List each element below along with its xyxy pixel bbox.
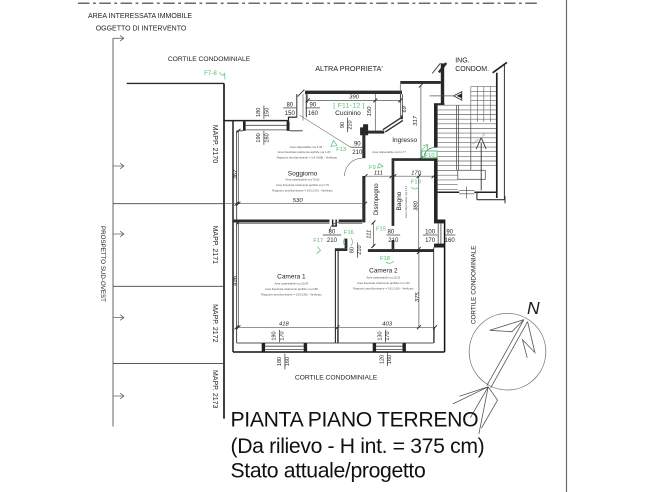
- svg-text:PIANTA PIANO TERRENO: PIANTA PIANO TERRENO: [231, 409, 479, 432]
- svg-text:Rapporto aeroilluminante = 1/8: Rapporto aeroilluminante = 1/8 (2,42) - …: [272, 188, 333, 192]
- svg-text:160: 160: [387, 355, 393, 364]
- svg-text:(Da rilievo - H int. = 375 cm): (Da rilievo - H int. = 375 cm): [231, 435, 485, 458]
- svg-text:Rapporto aeroilluminante = 1/4: Rapporto aeroilluminante = 1/4 (0,88) - …: [277, 155, 338, 159]
- svg-text:CORTILE CONDOMINIALE: CORTILE CONDOMINIALE: [470, 245, 477, 324]
- svg-text:F16: F16: [344, 230, 354, 236]
- svg-text:496: 496: [232, 275, 238, 286]
- svg-text:Rapporto aeroilluminante = 1/8: Rapporto aeroilluminante = 1/8 (2,58) - …: [261, 292, 322, 296]
- svg-text:210: 210: [347, 120, 353, 129]
- svg-text:160: 160: [445, 238, 456, 244]
- svg-text:Area calpestabile mq 11,77: Area calpestabile mq 11,77: [372, 150, 406, 154]
- svg-text:CORTILE CONDOMINIALE: CORTILE CONDOMINIALE: [295, 375, 378, 382]
- svg-text:180: 180: [277, 357, 283, 366]
- svg-text:375: 375: [415, 292, 421, 303]
- svg-text:Area calpestabile mq 15,01: Area calpestabile mq 15,01: [366, 276, 400, 280]
- svg-text:111: 111: [374, 170, 383, 176]
- svg-text:MAPP. 2172: MAPP. 2172: [211, 304, 218, 343]
- svg-text:160: 160: [264, 133, 270, 142]
- svg-text:[ F11-12 ]: [ F11-12 ]: [333, 103, 365, 110]
- svg-text:80: 80: [350, 247, 356, 253]
- svg-text:Area calpestabile mq 70,62: Area calpestabile mq 70,62: [286, 178, 320, 182]
- svg-text:210: 210: [388, 238, 399, 244]
- svg-text:F17: F17: [313, 238, 323, 244]
- svg-text:ING.: ING.: [455, 58, 469, 65]
- svg-text:130: 130: [378, 331, 384, 340]
- svg-text:190: 190: [256, 133, 262, 142]
- svg-text:90: 90: [340, 122, 346, 128]
- svg-text:317: 317: [413, 115, 419, 126]
- svg-text:160: 160: [308, 111, 319, 117]
- svg-text:170: 170: [425, 238, 436, 244]
- svg-text:MAPP. 2170: MAPP. 2170: [211, 125, 218, 164]
- svg-text:Cucinino: Cucinino: [335, 110, 361, 117]
- svg-text:180: 180: [256, 108, 262, 117]
- svg-text:CORTILE CONDOMINIALE: CORTILE CONDOMINIALE: [168, 56, 251, 63]
- svg-text:367: 367: [233, 169, 239, 180]
- svg-text:80: 80: [329, 230, 336, 236]
- svg-text:F13: F13: [336, 147, 346, 153]
- svg-text:ALTRA PROPRIETA': ALTRA PROPRIETA': [315, 64, 383, 73]
- svg-text:PROSPETTO SUD-OVEST: PROSPETTO SUD-OVEST: [99, 226, 106, 302]
- svg-text:403: 403: [382, 321, 393, 327]
- svg-text:380: 380: [414, 200, 420, 211]
- svg-text:90: 90: [446, 230, 453, 236]
- svg-text:170: 170: [385, 331, 391, 340]
- svg-text:160: 160: [285, 357, 291, 366]
- svg-text:MAPP. 2171: MAPP. 2171: [211, 226, 218, 265]
- svg-text:MAPP. 2173: MAPP. 2173: [211, 370, 218, 409]
- svg-text:F9: F9: [369, 165, 376, 171]
- svg-text:Area calpestabile mq 5,45: Area calpestabile mq 5,45: [290, 145, 323, 149]
- svg-text:AREA INTERESSATA IMMOBILE: AREA INTERESSATA IMMOBILE: [88, 13, 192, 20]
- svg-text:80: 80: [387, 230, 394, 236]
- svg-text:Bagno: Bagno: [396, 191, 403, 210]
- svg-text:210: 210: [352, 150, 363, 156]
- svg-text:Rapporto aeroilluminante = 1/8: Rapporto aeroilluminante = 1/8 (1,90) - …: [353, 286, 414, 290]
- svg-text:Camera 2: Camera 2: [369, 268, 398, 275]
- svg-text:390: 390: [349, 95, 360, 101]
- svg-text:F7-8: F7-8: [204, 70, 217, 77]
- svg-text:530: 530: [293, 198, 304, 204]
- svg-text:120: 120: [379, 355, 385, 364]
- svg-text:Area calpestabile mq 6,16: Area calpestabile mq 6,16: [404, 185, 408, 218]
- svg-text:OGGETTO DI INTERVENTO: OGGETTO DI INTERVENTO: [96, 26, 187, 33]
- svg-text:Area finestrata totalmente apr: Area finestrata totalmente apribile mq 2…: [265, 287, 318, 291]
- svg-text:150: 150: [367, 106, 373, 117]
- svg-text:90: 90: [354, 142, 361, 148]
- svg-text:Disimpegno: Disimpegno: [374, 183, 380, 215]
- svg-text:150: 150: [285, 111, 296, 117]
- svg-text:Area finestrata totalmente apr: Area finestrata totalmente apribile mq 1…: [278, 150, 331, 154]
- svg-text:Ingresso: Ingresso: [392, 137, 417, 144]
- svg-text:100: 100: [425, 230, 436, 236]
- svg-text:CONDOM.: CONDOM.: [455, 66, 489, 73]
- svg-text:Stato attuale/progetto: Stato attuale/progetto: [231, 460, 426, 483]
- svg-text:F15: F15: [376, 227, 386, 233]
- svg-text:80: 80: [286, 102, 293, 108]
- svg-text:418: 418: [279, 321, 290, 327]
- svg-text:90: 90: [310, 102, 317, 108]
- svg-text:69: 69: [402, 105, 408, 112]
- svg-text:170: 170: [280, 331, 286, 340]
- svg-text:Area finestrata totalmente apr: Area finestrata totalmente apribile mq 1…: [357, 281, 410, 285]
- svg-text:F19: F19: [411, 179, 421, 185]
- svg-text:Area calpestabile mq 20,04: Area calpestabile mq 20,04: [274, 282, 308, 286]
- svg-text:111: 111: [367, 230, 373, 239]
- svg-text:F18: F18: [380, 256, 390, 262]
- svg-text:210: 210: [357, 245, 363, 254]
- svg-text:Area finestrata totalmente apr: Area finestrata totalmente apribile mq 2…: [276, 183, 329, 187]
- svg-text:170: 170: [411, 170, 422, 176]
- svg-text:210: 210: [327, 238, 338, 244]
- svg-text:150: 150: [264, 108, 270, 117]
- svg-text:N: N: [527, 298, 540, 318]
- svg-text:Camera 1: Camera 1: [277, 274, 306, 281]
- svg-text:190: 190: [272, 331, 278, 340]
